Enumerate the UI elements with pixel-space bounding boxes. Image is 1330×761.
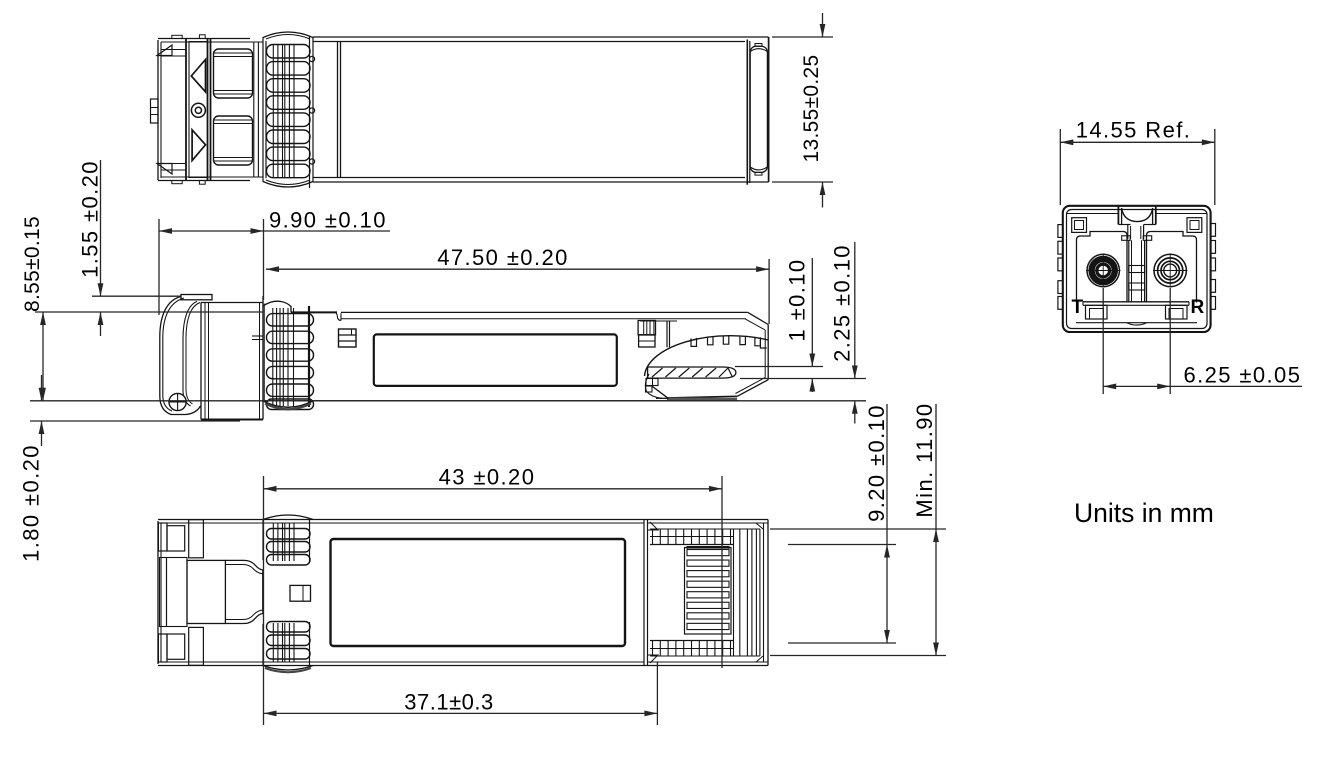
svg-text:47.50 ±0.20: 47.50 ±0.20 [437,245,568,270]
svg-text:R: R [1191,297,1205,318]
svg-text:T: T [1072,297,1084,318]
svg-text:Units in mm: Units in mm [1074,498,1214,528]
svg-text:6.25 ±0.05: 6.25 ±0.05 [1184,362,1302,387]
svg-text:9.20 ±0.10: 9.20 ±0.10 [864,404,889,522]
svg-text:1.80 ±0.20: 1.80 ±0.20 [19,444,44,562]
svg-text:9.90 ±0.10: 9.90 ±0.10 [269,207,387,232]
svg-text:37.1±0.3: 37.1±0.3 [404,690,493,715]
svg-text:1.55 ±0.20: 1.55 ±0.20 [78,160,103,278]
svg-text:43 ±0.20: 43 ±0.20 [439,465,536,490]
svg-text:2.25 ±0.10: 2.25 ±0.10 [830,244,855,362]
svg-text:1 ±0.10: 1 ±0.10 [785,258,810,341]
svg-text:14.55 Ref.: 14.55 Ref. [1076,118,1192,143]
svg-text:8.55±0.15: 8.55±0.15 [21,216,44,312]
svg-text:Min. 11.90: Min. 11.90 [912,402,937,517]
svg-text:13.55±0.25: 13.55±0.25 [800,55,823,163]
